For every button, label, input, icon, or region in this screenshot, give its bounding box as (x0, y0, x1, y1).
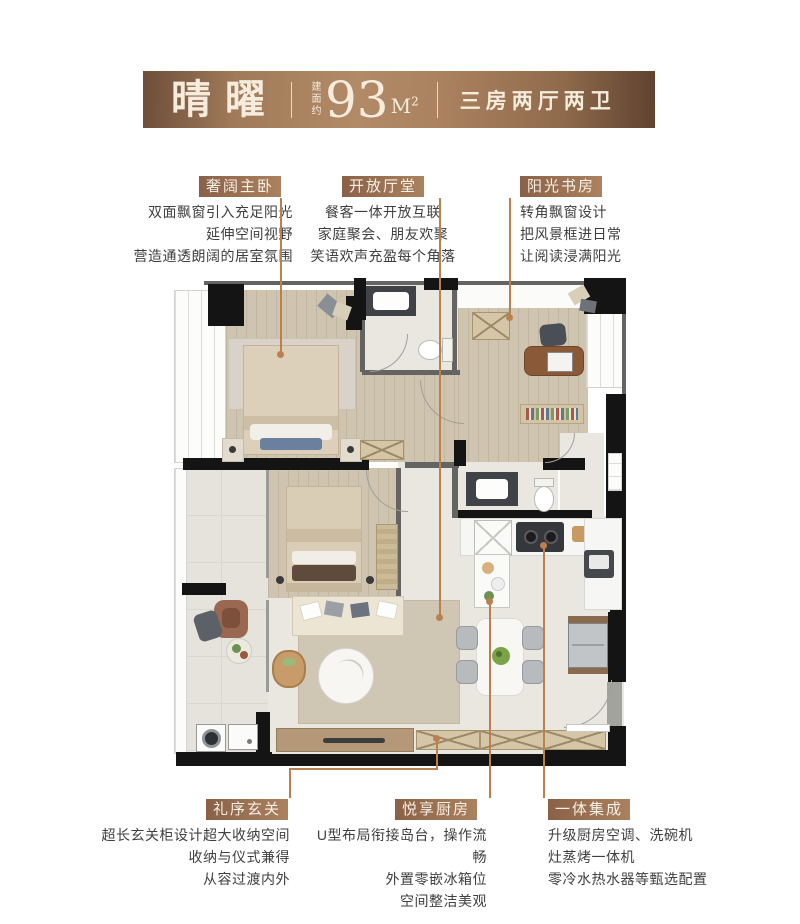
study-cabinet (472, 312, 510, 340)
fridge-body (568, 623, 608, 668)
nightstand-left (222, 438, 244, 462)
header-divider-right (437, 82, 438, 118)
leader-dot-study (506, 314, 513, 321)
master-wardrobe (360, 440, 404, 460)
cushion-icon (282, 658, 296, 666)
fridge-trim (568, 668, 608, 674)
rattan-chair-icon (272, 650, 306, 688)
callout-line: 营造通透朗阔的居室氛围 (88, 245, 293, 267)
callout-line: 把风景框进日常 (520, 223, 690, 245)
plant-icon (492, 647, 510, 665)
callout-line: 灶蒸烤一体机 (548, 846, 728, 868)
toilet-tank-icon (442, 338, 453, 362)
washing-machine (196, 724, 226, 752)
leader-master-bedroom (280, 198, 282, 354)
wall-block-entry-right (608, 612, 626, 682)
wall-block-bottom-left (176, 752, 272, 766)
bookshelf (520, 404, 584, 424)
callout-line: U型布局衔接岛台，操作流畅 (305, 824, 487, 868)
lamp-icon (366, 576, 374, 584)
kitchen-sink-icon (584, 550, 614, 578)
bed-fold (287, 529, 361, 542)
callout-line: 升级厨房空调、洗碗机 (548, 824, 728, 846)
callout-line: 转角飘窗设计 (520, 201, 690, 223)
callout-badge-living-hall: 开放厅堂 (342, 176, 424, 197)
callout-line: 空间整洁美观 (305, 890, 487, 912)
deco-chair-icon (579, 299, 597, 314)
wall-top (204, 281, 594, 285)
burner-icon (524, 530, 538, 544)
callout-line: 外置零嵌冰箱位 (305, 868, 487, 890)
laptop-icon (547, 352, 573, 372)
sofa-pillow (376, 600, 399, 620)
leader-foyer-v2 (436, 740, 438, 770)
window-right-mid (608, 453, 622, 491)
bath2-vanity (466, 472, 518, 506)
sofa-pillow (324, 601, 344, 618)
plate-icon (482, 562, 494, 574)
leader-dot-foyer (433, 735, 440, 742)
foyer-cabinet (416, 730, 480, 750)
bed2 (286, 486, 362, 592)
callout-line: 双面飘窗引入充足阳光 (88, 201, 293, 223)
callout-line: 超长玄关柜设计超大收纳空间 (98, 824, 290, 846)
leader-living-hall (439, 198, 441, 618)
wall-block-balcony (182, 583, 226, 595)
callout-foyer: 礼序玄关 超长玄关柜设计超大收纳空间 收纳与仪式兼得 从容过渡内外 (98, 798, 290, 890)
wardrobe2 (376, 524, 398, 590)
callout-line: 零冷水热水器等甄选配置 (548, 868, 728, 890)
area-unit: M2 (391, 94, 419, 118)
kitchen-cabinet (474, 520, 512, 556)
callout-line: 从容过渡内外 (98, 868, 290, 890)
study-top-white (458, 284, 588, 310)
nightstand-right (340, 438, 362, 462)
header-divider-left (291, 82, 292, 118)
callout-line: 延伸空间视野 (88, 223, 293, 245)
leader-dot-kitchen (486, 598, 493, 605)
callout-study: 阳光书房 转角飘窗设计 把风景框进日常 让阅读浸满阳光 (520, 175, 690, 267)
tv-handle (323, 738, 385, 743)
books-icon (526, 408, 578, 420)
dining-table (476, 618, 524, 696)
sink-basin-icon (589, 555, 609, 569)
bed-pillows-white (292, 551, 356, 564)
lamp-icon (276, 576, 284, 584)
balcony-window-strip (174, 468, 187, 754)
bowl-icon (240, 651, 248, 659)
dining-chair (456, 626, 478, 650)
leader-dot-master-bedroom (277, 351, 284, 358)
bed-pillows-blue (260, 438, 322, 450)
master-bed (243, 345, 339, 455)
headboard (287, 583, 361, 591)
callout-badge-kitchen: 悦享厨房 (395, 799, 477, 820)
callout-badge-integrated: 一体集成 (548, 799, 630, 820)
callout-line: 让阅读浸满阳光 (520, 245, 690, 267)
leader-foyer-v1 (289, 768, 291, 798)
leader-foyer-h (289, 768, 437, 770)
callout-kitchen: 悦享厨房 U型布局衔接岛台，操作流畅 外置零嵌冰箱位 空间整洁美观 (305, 798, 487, 912)
sofa-pillow (350, 602, 370, 618)
marble-vein (327, 653, 370, 696)
wall-bed2-top (405, 462, 459, 468)
area-value: 93 (325, 75, 389, 125)
leader-study (509, 198, 511, 318)
leader-integrated (543, 548, 545, 798)
master-bath-vanity (366, 286, 416, 316)
wall-block-topleft (208, 284, 244, 326)
leader-dot-living-hall (436, 614, 443, 621)
floor-plan (168, 278, 630, 770)
desk-chair-icon (539, 323, 567, 348)
fridge-line (572, 644, 604, 646)
callout-master-bedroom: 奢阔主卧 双面飘窗引入充足阳光 延伸空间视野 营造通透朗阔的居室氛围 (88, 175, 293, 267)
faucet-icon (247, 739, 252, 744)
dining-chair (522, 660, 544, 684)
foyer-cabinet (544, 730, 606, 750)
callout-integrated: 一体集成 升级厨房空调、洗碗机 灶蒸烤一体机 零冷水热水器等甄选配置 (548, 798, 728, 890)
armchair-cushion (222, 608, 240, 628)
laundry-sink (228, 724, 258, 750)
burner-icon (544, 530, 558, 544)
dining-chair (456, 660, 478, 684)
floorplan-poster: 晴曜 建面约 93 M2 三房两厅两卫 奢阔主卧 双面飘窗引入充足阳光 延伸空间… (0, 0, 800, 924)
area-prefix: 建面约 (308, 81, 320, 119)
fridge-trim (568, 616, 608, 623)
wall-block-bottom-right (544, 750, 616, 766)
balcony-glass-lower (266, 600, 269, 692)
wall-block-corridor-bath2 (454, 440, 466, 466)
washer-drum-icon (202, 729, 221, 748)
study-desk (524, 346, 584, 376)
callout-badge-master-bedroom: 奢阔主卧 (199, 176, 281, 197)
layout-text: 三房两厅两卫 (460, 85, 616, 115)
tv-cabinet (276, 728, 414, 752)
sink-basin-icon (373, 292, 409, 310)
leader-dot-integrated (540, 542, 547, 549)
callout-line: 收纳与仪式兼得 (98, 846, 290, 868)
entry-threshold (566, 724, 610, 732)
callout-badge-study: 阳光书房 (520, 176, 602, 197)
dining-chair (522, 626, 544, 650)
wall-block-kitchen-top (458, 510, 592, 518)
fridge (568, 616, 608, 674)
balcony-glass-upper (266, 468, 269, 578)
leader-kitchen (489, 604, 491, 798)
toilet-icon (534, 486, 554, 512)
lamp-icon (229, 446, 236, 453)
header-banner: 晴曜 建面约 93 M2 三房两厅两卫 (143, 71, 655, 128)
project-name: 晴曜 (171, 80, 279, 120)
sink-basin-icon (476, 479, 508, 499)
sofa-pillow (299, 601, 322, 621)
plate-icon (491, 577, 505, 591)
wall-block-bath-top (424, 278, 458, 290)
callout-badge-foyer: 礼序玄关 (206, 799, 288, 820)
sofa (292, 596, 404, 636)
coffee-table (318, 648, 374, 704)
lamp-icon (347, 446, 354, 453)
plant-icon (232, 644, 241, 653)
bed-pillows-dark (292, 565, 356, 581)
plant-leaf (496, 651, 502, 657)
side-table-icon (226, 638, 252, 664)
